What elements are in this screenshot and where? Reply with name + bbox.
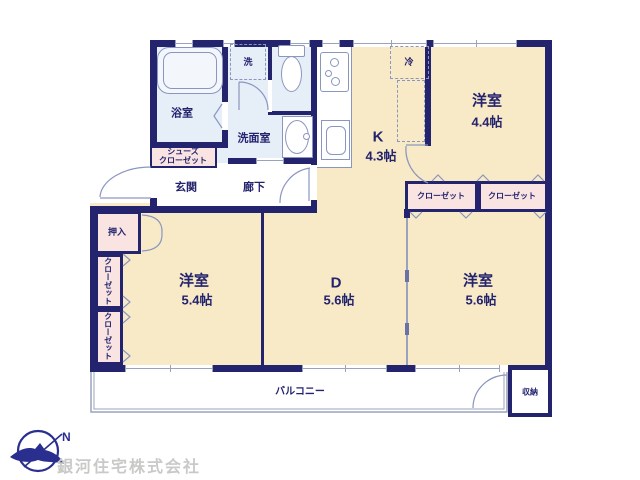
oshiire-label: 押入 (108, 227, 126, 237)
bedroom-ne-size: 4.4帖 (471, 116, 502, 131)
closet-chevron (410, 212, 422, 218)
kitchen-door-arc (406, 146, 428, 183)
bedroom-sw-label: 洋室 (179, 272, 209, 289)
bedroom-ne-label: 洋室 (472, 92, 502, 109)
kitchen-size: 4.3帖 (365, 150, 396, 165)
plan-vector-overlay: N (0, 0, 640, 480)
closet-w-lower-label: クローゼット (103, 312, 112, 360)
toilet-door-arc (239, 82, 268, 110)
closet-chevron (123, 311, 130, 323)
entrance-label: 玄関 (175, 182, 197, 195)
storage-label: 収納 (522, 387, 538, 396)
bath-folding-door (214, 104, 222, 128)
dining-label: D (331, 274, 342, 291)
compass-north-label: N (62, 430, 71, 444)
floor-plan: N 浴室 洗 洗面室 シューズ クローゼット 玄関 廊下 K 4.3帖 冷 洋室… (0, 0, 640, 480)
balcony-label: バルコニー (275, 386, 325, 398)
closet-chevron (123, 296, 130, 308)
bedroom-sw-size: 5.4帖 (181, 294, 212, 309)
closet-w-upper-label: クローゼット (103, 257, 112, 305)
shoes-closet-line2: クローゼット (159, 156, 207, 165)
closet-ne-right-label: クローゼット (488, 191, 536, 200)
company-name: 銀河住宅株式会社 (57, 453, 201, 477)
washroom-label: 洗面室 (238, 133, 271, 146)
dining-size: 5.6帖 (323, 294, 354, 309)
kitchen-label: K (373, 128, 384, 145)
closet-chevron (432, 175, 444, 181)
oshiire-door-arc (142, 215, 162, 233)
closet-ne-left-label: クローゼット (417, 191, 465, 200)
refrigerator-label: 冷 (404, 57, 413, 67)
closet-chevron (532, 175, 544, 181)
bath-label: 浴室 (171, 108, 193, 121)
shoes-closet-label: シューズ クローゼット (159, 147, 207, 165)
storage-door-arc (473, 375, 507, 408)
closet-chevron (123, 254, 130, 266)
closet-chevron (477, 175, 489, 181)
bedroom-se-size: 5.6帖 (465, 294, 496, 309)
closet-chevron (123, 350, 130, 362)
entrance-door-arc (100, 167, 151, 197)
bedroom-se-label: 洋室 (463, 272, 493, 289)
oshiire-door-arc (142, 233, 162, 251)
shoes-closet-line1: シューズ (159, 147, 207, 156)
closet-chevron (460, 212, 472, 218)
hallway-label: 廊下 (243, 182, 265, 195)
closet-chevron (534, 212, 546, 218)
hallway-door-arc (280, 168, 310, 203)
laundry-label: 洗 (243, 57, 252, 67)
